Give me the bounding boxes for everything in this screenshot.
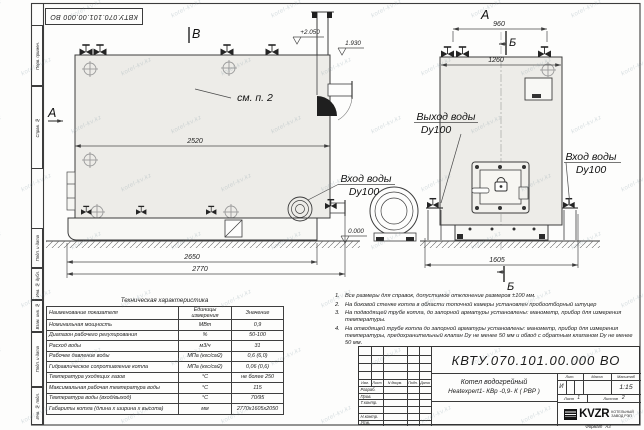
tb-sheet: Лист 1 [557, 394, 587, 402]
tb-row-utv: Утв. [359, 420, 383, 427]
note-item: 2. На боковой стенке котла в области топ… [333, 302, 638, 309]
elevation-stub: 1.930 [345, 40, 361, 47]
dim-960: 960 [493, 21, 505, 28]
spec-row: Расход водым3/ч31 [47, 341, 284, 352]
spec-row: Гидравлическое сопротивление котлаМПа (к… [47, 362, 284, 373]
spec-row: Температура воды (вход/выход)°С70/95 [47, 393, 284, 404]
dim-1260: 1260 [488, 57, 504, 64]
margin-podp-data-2: Подп. и дата [31, 332, 43, 387]
spec-table-title: Техническая характеристика [46, 297, 283, 306]
see-note-label: см. п. 2 [237, 92, 273, 104]
ground-front [420, 241, 600, 248]
tb-product-name: Котел водогрейный [431, 377, 557, 387]
format-note: Формат А3 [556, 424, 640, 429]
front-base [455, 225, 548, 240]
dim-2770: 2770 [191, 266, 208, 273]
company-name: КОТЕЛЬНЫЙ ЗАВОД РЭП [611, 410, 634, 418]
dim-1605: 1605 [489, 257, 505, 264]
spec-col-name: Наименование показателя [47, 307, 179, 320]
note-item: 1. Все размеры для справок, допустимое о… [333, 293, 638, 300]
tb-col-date: Дата [419, 379, 431, 386]
tb-col-izm: Изм. [359, 379, 371, 386]
base-skid [68, 218, 317, 240]
tb-row-blank [359, 406, 383, 413]
title-block: Изм. Лист N докум. Подп. Дата Разраб. Пр… [358, 346, 640, 425]
spec-header-row: Наименование показателя Единицы измерени… [47, 307, 284, 320]
tb-product-model: Heatexpert1- КВр -0,9- К ( РВР ) [431, 387, 557, 396]
tb-row-nkontr: Н.контр. [359, 413, 383, 420]
spec-row: Габариты котла (длина х ширина х высота)… [47, 404, 284, 415]
tb-logo-cell: KVZR КОТЕЛЬНЫЙ ЗАВОД РЭП [557, 402, 641, 426]
tb-col-list: Лист [371, 379, 383, 386]
tb-col-doc: N докум. [383, 379, 407, 386]
inlet-front-dn: Dy100 [576, 164, 607, 176]
top-designation-stamp: КВТУ.070.101.00.000 ВО [45, 8, 143, 25]
valves-side-top [80, 45, 279, 56]
elevation-zero: 0.000 [348, 228, 364, 235]
spec-row: Максимальная рабочая температура воды°С1… [47, 383, 284, 394]
spec-row: Рабочее давление водыМПа (кгс/см2)0,6 (6… [47, 351, 284, 362]
section-a-front: А [480, 8, 489, 22]
tb-lit-label: Лит. [557, 373, 583, 380]
inlet-side-label: Вход воды [341, 173, 392, 185]
margin-inv-podl: Инв. № подл. [31, 387, 43, 425]
margin-inv-dubl: Инв. № дубл. [31, 268, 43, 300]
inlet-front-label: Вход воды [566, 151, 617, 163]
margin-vzam-inv: Взам. инв. № [31, 300, 43, 332]
tb-row-prov: Пров. [359, 393, 383, 400]
outlet-label: Выход воды [416, 111, 475, 123]
margin-perv-primen: Перв. примен. [31, 25, 43, 86]
notes: 1. Все размеры для справок, допустимое о… [333, 293, 638, 348]
spec-row: Диапазон рабочего регулирования%50-100 [47, 330, 284, 341]
ground-side [46, 241, 360, 248]
section-b-top: Б [509, 37, 516, 49]
kvzr-logo-text: KVZR [579, 408, 609, 420]
tb-col-sign: Подп. [407, 379, 419, 386]
spec-table: Техническая характеристика Наименование … [46, 297, 283, 415]
tb-mass-label: Масса [583, 373, 611, 380]
kvzr-logo-icon [564, 409, 577, 420]
spec-row: Температура уходящих газов°Сне более 250 [47, 372, 284, 383]
tb-sheets: Листов 2 [587, 394, 641, 402]
dim-2520: 2520 [186, 138, 203, 145]
tb-row-tkontr: Т.контр. [359, 399, 383, 406]
top-designation-text: КВТУ.070.101.00.000 ВО [50, 13, 138, 20]
section-a-side: А [47, 106, 56, 120]
spec-col-units: Единицы измерения [179, 307, 232, 320]
spec-col-value: Значение [232, 307, 284, 320]
outlet-dn: Dy100 [421, 124, 452, 136]
furnace-door [472, 162, 529, 213]
control-panel [525, 78, 552, 100]
tb-row-razrab: Разраб. [359, 386, 383, 393]
inlet-side-dn: Dy100 [349, 186, 380, 198]
tb-designation: КВТУ.070.101.00.000 ВО [431, 347, 641, 373]
drawing-sheet: 2520 2650 2770 960 1260 1605 Выход воды … [0, 0, 644, 430]
note-item: 3. На подводящей трубе котла, до запорно… [333, 310, 638, 324]
tb-lit-value: И [557, 380, 566, 394]
margin-sprav-no: Справ. № [31, 86, 43, 169]
tb-scale-value: 1:15 [611, 380, 641, 394]
spec-row: Номинальная мощностьМВт0,9 [47, 320, 284, 331]
note-item: 4. На отводящей трубе котла до запорной … [333, 326, 638, 347]
section-b-bottom: Б [507, 281, 514, 293]
elevation-top: +2.050 [300, 29, 320, 36]
margin-podp-data-1: Подп. и дата [31, 228, 43, 268]
dim-2650: 2650 [183, 254, 200, 261]
tb-scale-label: Масштаб [611, 373, 641, 380]
section-v: В [192, 27, 200, 41]
boiler-side-view [46, 12, 360, 248]
